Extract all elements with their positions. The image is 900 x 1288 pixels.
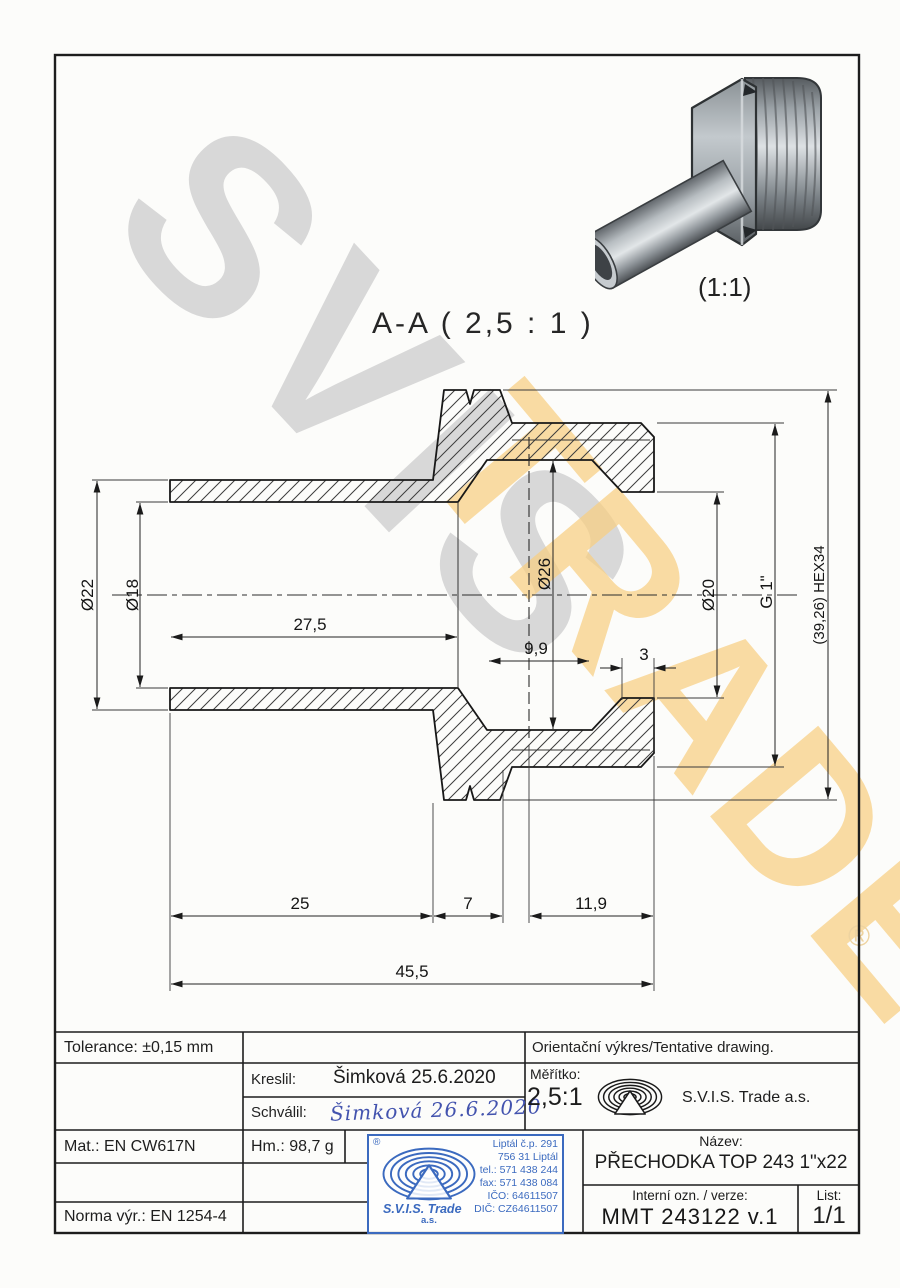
company-logo [596,1074,664,1120]
internal-code-value: MMT 243122 v.1 [601,1204,778,1230]
stamp-address-line: Liptál č.p. 291 [474,1138,558,1151]
stamp-address: Liptál č.p. 291 756 31 Liptál tel.: 571 … [474,1138,558,1216]
company-name: S.V.I.S. Trade a.s. [682,1089,810,1107]
stamp-address-line: tel.: 571 438 244 [474,1164,558,1177]
stamp-address-line: 756 31 Liptál [474,1151,558,1164]
dim-25: 25 [291,894,310,913]
dim-d22: Ø22 [78,579,97,611]
schvalil-label: Schválil: [251,1104,307,1121]
company-stamp: ® S.V.I.S. Trade a.s. Liptál č.p. 291 75… [367,1134,564,1234]
stamp-company-suffix: a.s. [421,1215,437,1226]
dim-d26: Ø26 [535,558,554,590]
stamp-address-line: fax: 571 438 084 [474,1177,558,1190]
dim-27-5: 27,5 [293,615,326,634]
tolerance-value: Tolerance: ±0,15 mm [64,1039,213,1057]
norm-value: Norma výr.: EN 1254-4 [64,1208,227,1226]
dim-9-9: 9,9 [524,639,548,658]
stamp-logo [379,1146,479,1202]
material-value: Mat.: EN CW617N [64,1138,196,1156]
stamp-company-name: S.V.I.S. Trade [383,1202,462,1216]
dim-45-5: 45,5 [395,962,428,981]
dim-g1: G 1" [757,575,776,608]
sheet-value: 1/1 [812,1202,845,1230]
dim-11-9: 11,9 [575,894,607,913]
stamp-address-line: DIČ: CZ64611507 [474,1203,558,1216]
scale-label: Měřítko: [530,1066,581,1082]
render-scale-label: (1:1) [698,272,751,303]
nazev-label: Název: [699,1133,743,1149]
section-view-label: A-A ( 2,5 : 1 ) [372,307,594,341]
dim-3: 3 [639,645,648,664]
scale-value: 2,5:1 [527,1083,583,1112]
kreslil-label: Kreslil: [251,1071,296,1088]
nazev-value: PŘECHODKA TOP 243 1"x22 [595,1152,848,1174]
weight-value: Hm.: 98,7 g [251,1138,334,1156]
stamp-address-line: IČO: 64611507 [474,1190,558,1203]
internal-code-label: Interní ozn. / verze: [632,1188,748,1203]
drawing-sheet: SVIS TRADE ® [0,0,900,1288]
part-3d-render [595,66,830,291]
dim-hex: (39,26) HEX34 [811,545,828,644]
dim-d20: Ø20 [699,579,718,611]
dim-7: 7 [463,894,472,913]
kreslil-value: Šimková 25.6.2020 [333,1067,496,1089]
tentative-drawing-note: Orientační výkres/Tentative drawing. [532,1039,774,1056]
dim-d18: Ø18 [123,579,142,611]
sheet-label: List: [817,1188,842,1203]
